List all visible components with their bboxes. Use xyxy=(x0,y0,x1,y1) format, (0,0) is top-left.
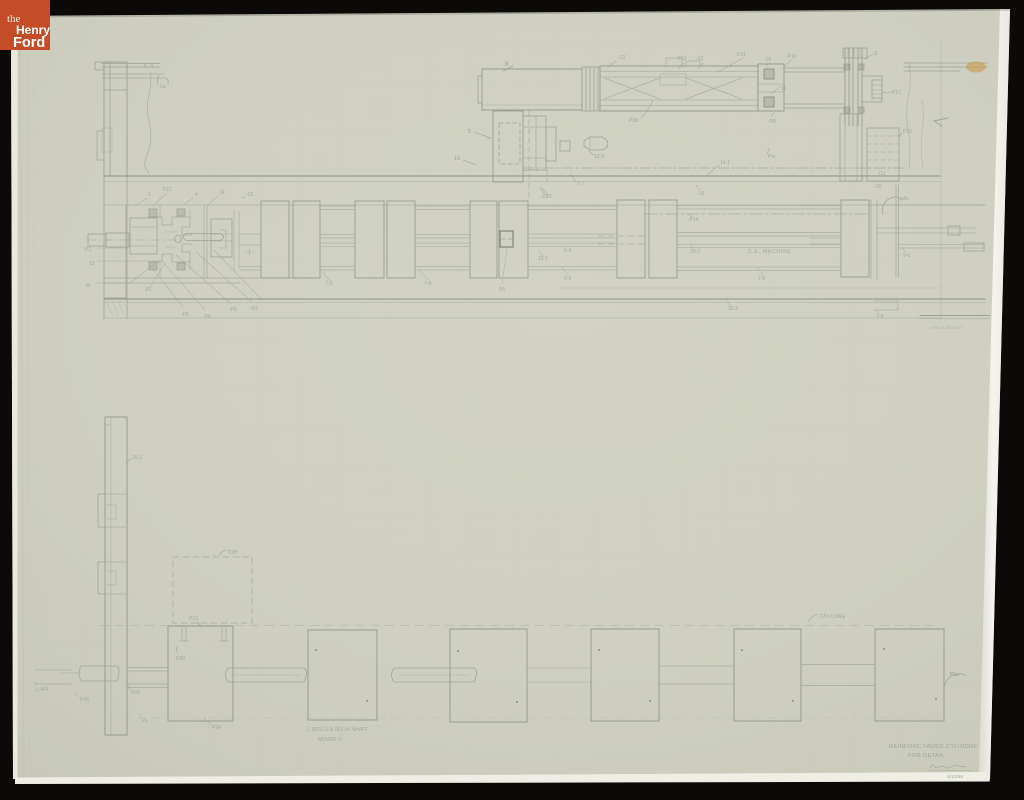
svg-text:-P5: -P5 xyxy=(181,312,189,318)
svg-text:21: 21 xyxy=(142,718,148,724)
svg-text:10-1: 10-1 xyxy=(538,256,548,262)
svg-text:7-4: 7-4 xyxy=(424,281,431,287)
svg-text:P34: P34 xyxy=(212,725,221,731)
svg-text:22-2: 22-2 xyxy=(594,154,604,160)
svg-text:20-2: 20-2 xyxy=(690,249,700,255)
svg-text:L-441: L-441 xyxy=(36,687,49,693)
svg-text:P30: P30 xyxy=(176,656,185,662)
svg-text:-P8: -P8 xyxy=(768,119,776,125)
svg-text:11: 11 xyxy=(781,86,786,92)
svg-text:14-1: 14-1 xyxy=(720,160,730,166)
svg-text:M: M xyxy=(86,283,90,289)
svg-text:67½ LONG: 67½ LONG xyxy=(820,613,845,620)
svg-text:FOR DETAIL: FOR DETAIL xyxy=(908,753,945,759)
svg-text:P23: P23 xyxy=(189,616,198,622)
svg-text:P11: P11 xyxy=(163,187,172,193)
svg-text:-12: -12 xyxy=(696,56,703,62)
svg-text:-P12: -P12 xyxy=(676,56,687,62)
svg-text:P14: P14 xyxy=(80,697,89,703)
svg-text:-P16: -P16 xyxy=(786,54,797,60)
svg-text:REINFORC FADED CYLINDRE: REINFORC FADED CYLINDRE xyxy=(889,744,978,750)
svg-text:9-5: 9-5 xyxy=(564,276,571,282)
svg-text:P6: P6 xyxy=(499,287,505,293)
svg-text:24: 24 xyxy=(219,190,225,196)
svg-text:Ford: Ford xyxy=(13,35,45,51)
svg-text:-P3: -P3 xyxy=(250,306,258,312)
svg-text:P1a: P1a xyxy=(950,672,959,678)
svg-text:1-4: 1-4 xyxy=(564,248,571,254)
svg-text:P28: P28 xyxy=(228,550,237,556)
svg-text:S.E. MACHINE: S.E. MACHINE xyxy=(748,249,792,255)
svg-text:7-3: 7-3 xyxy=(325,281,332,287)
svg-text:P17: P17 xyxy=(892,90,901,96)
svg-text:P29: P29 xyxy=(131,690,140,696)
svg-text:P2: P2 xyxy=(85,247,91,253)
svg-text:P21: P21 xyxy=(737,52,746,58)
svg-text:10: 10 xyxy=(546,194,552,200)
svg-text:-10: -10 xyxy=(764,57,771,63)
svg-text:8: 8 xyxy=(505,61,509,68)
svg-text:9: 9 xyxy=(874,51,877,57)
svg-text:-13: -13 xyxy=(618,55,625,61)
svg-text:4: 4 xyxy=(195,192,198,198)
svg-text:1: 1 xyxy=(148,192,151,198)
svg-text:5: 5 xyxy=(468,129,471,135)
svg-text:-P14: -P14 xyxy=(688,217,699,223)
svg-text:2a: 2a xyxy=(160,84,166,90)
svg-text:9-6: 9-6 xyxy=(903,253,910,259)
svg-text:com on 2000-B7: com on 2000-B7 xyxy=(930,325,963,330)
svg-text:-12: -12 xyxy=(246,192,253,198)
svg-text:20: 20 xyxy=(876,184,882,190)
svg-text:12: 12 xyxy=(89,261,95,267)
svg-text:ℒ ROLLS & DELAY SHAFT: ℒ ROLLS & DELAY SHAFT xyxy=(307,727,368,733)
svg-text:-P1: -P1 xyxy=(144,287,152,293)
svg-text:o5c: o5c xyxy=(901,196,910,202)
svg-text:18: 18 xyxy=(454,156,460,162)
svg-text:7-6: 7-6 xyxy=(758,276,765,282)
svg-text:P w: P w xyxy=(768,154,776,160)
svg-text:P30: P30 xyxy=(629,118,638,124)
svg-text:MOVED ¼ →: MOVED ¼ → xyxy=(318,737,348,743)
svg-text:-P9: -P9 xyxy=(229,307,237,313)
svg-text:-10: -10 xyxy=(697,191,704,197)
svg-text:10-2: 10-2 xyxy=(728,306,738,312)
svg-text:7-8: 7-8 xyxy=(876,314,883,320)
svg-text:16-1: 16-1 xyxy=(132,455,142,461)
svg-text:4/12/66: 4/12/66 xyxy=(947,774,963,780)
svg-text:(1): (1) xyxy=(879,171,885,177)
svg-text:7-7: 7-7 xyxy=(577,181,584,187)
svg-text:-P6: -P6 xyxy=(203,314,211,320)
